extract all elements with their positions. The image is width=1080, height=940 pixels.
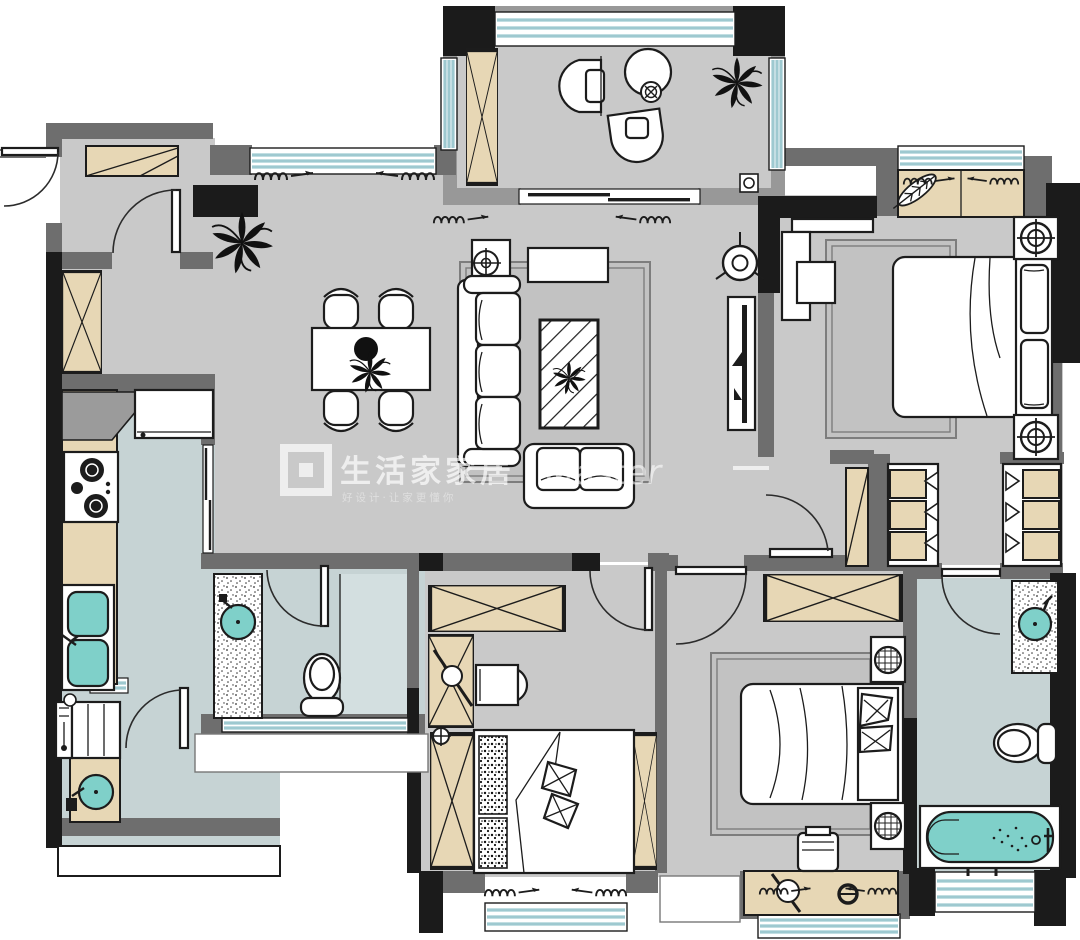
shoe-cabinet xyxy=(86,146,178,176)
coffee-table xyxy=(540,320,598,428)
fridge xyxy=(135,390,213,438)
utility-light-symbol xyxy=(64,694,76,706)
watermark-dash-left xyxy=(468,466,502,470)
dining-chair-4 xyxy=(379,391,413,431)
bathroom1-window xyxy=(222,718,408,732)
three-seat-sofa xyxy=(458,276,520,466)
living-window-top xyxy=(250,148,436,174)
bedroom2-cabinet-lower xyxy=(431,734,474,868)
bedroom2-side-cabinet xyxy=(632,734,656,868)
console-table xyxy=(528,248,608,282)
master-bed xyxy=(893,257,1052,417)
wardrobe-left xyxy=(846,464,938,566)
tv-panel xyxy=(728,297,755,430)
bedroom2-wardrobe xyxy=(430,586,564,632)
side-table-with-lamp xyxy=(471,240,510,278)
foyer-tall-cabinet xyxy=(63,272,102,373)
bedroom3-stool xyxy=(798,827,838,871)
bedroom3-nightstand-bottom xyxy=(871,803,905,849)
exterior-lightwell-sill xyxy=(195,734,428,772)
balcony-sliding-door xyxy=(519,189,700,204)
floor-drain xyxy=(740,174,758,192)
bathroom2-vanity xyxy=(1012,581,1058,673)
master-shelf xyxy=(792,219,873,232)
desk-and-chair xyxy=(476,665,527,705)
master-nightstand-top xyxy=(1014,217,1058,259)
tatami-bed xyxy=(474,730,634,873)
dining-chair-2 xyxy=(379,289,413,329)
floor-plan-drawing: 生活家家居 好设计·让家更懂你 Master xyxy=(0,0,1080,940)
balcony-cup xyxy=(641,82,661,102)
balcony-window-top xyxy=(495,12,735,46)
bedroom3-nightstand-top xyxy=(871,637,905,682)
watermark-tagline: 好设计·让家更懂你 xyxy=(342,491,456,504)
bedroom3-bed xyxy=(741,684,903,804)
master-nightstand-bottom xyxy=(1014,415,1058,459)
bathroom1-toilet xyxy=(301,654,343,716)
floor-plan-canvas: 生活家家居 好设计·让家更懂你 Master xyxy=(0,0,1080,940)
shower-area xyxy=(340,574,410,722)
cooktop xyxy=(64,452,118,522)
master-bay-window xyxy=(898,146,1024,170)
kitchen-pocket-door xyxy=(203,445,213,553)
exterior-notch-sill xyxy=(660,876,740,922)
balcony-storage-cabinet xyxy=(466,50,497,184)
master-side-table xyxy=(797,262,835,303)
bathroom2-toilet xyxy=(994,724,1056,763)
watermark-logo-text: 生活家家居 xyxy=(340,454,515,490)
utility-balcony-sill xyxy=(58,846,280,876)
bathroom1-vanity xyxy=(214,574,262,718)
watermark-script-text: Master xyxy=(545,453,663,493)
watermark-dash-right xyxy=(733,466,769,470)
balcony-window-left xyxy=(441,58,457,150)
washing-machine xyxy=(56,702,120,758)
bathroom2-window xyxy=(935,872,1035,912)
bedroom3-bay-window xyxy=(758,914,900,938)
dining-chair-1 xyxy=(324,289,358,329)
balcony-window-right xyxy=(769,58,785,170)
wardrobe-right xyxy=(1003,464,1061,566)
bathtub xyxy=(920,806,1060,876)
dining-chair-3 xyxy=(324,391,358,431)
double-sink xyxy=(62,585,114,690)
bedroom3-wardrobe xyxy=(765,575,901,622)
bedroom2-bay-window xyxy=(485,903,627,931)
